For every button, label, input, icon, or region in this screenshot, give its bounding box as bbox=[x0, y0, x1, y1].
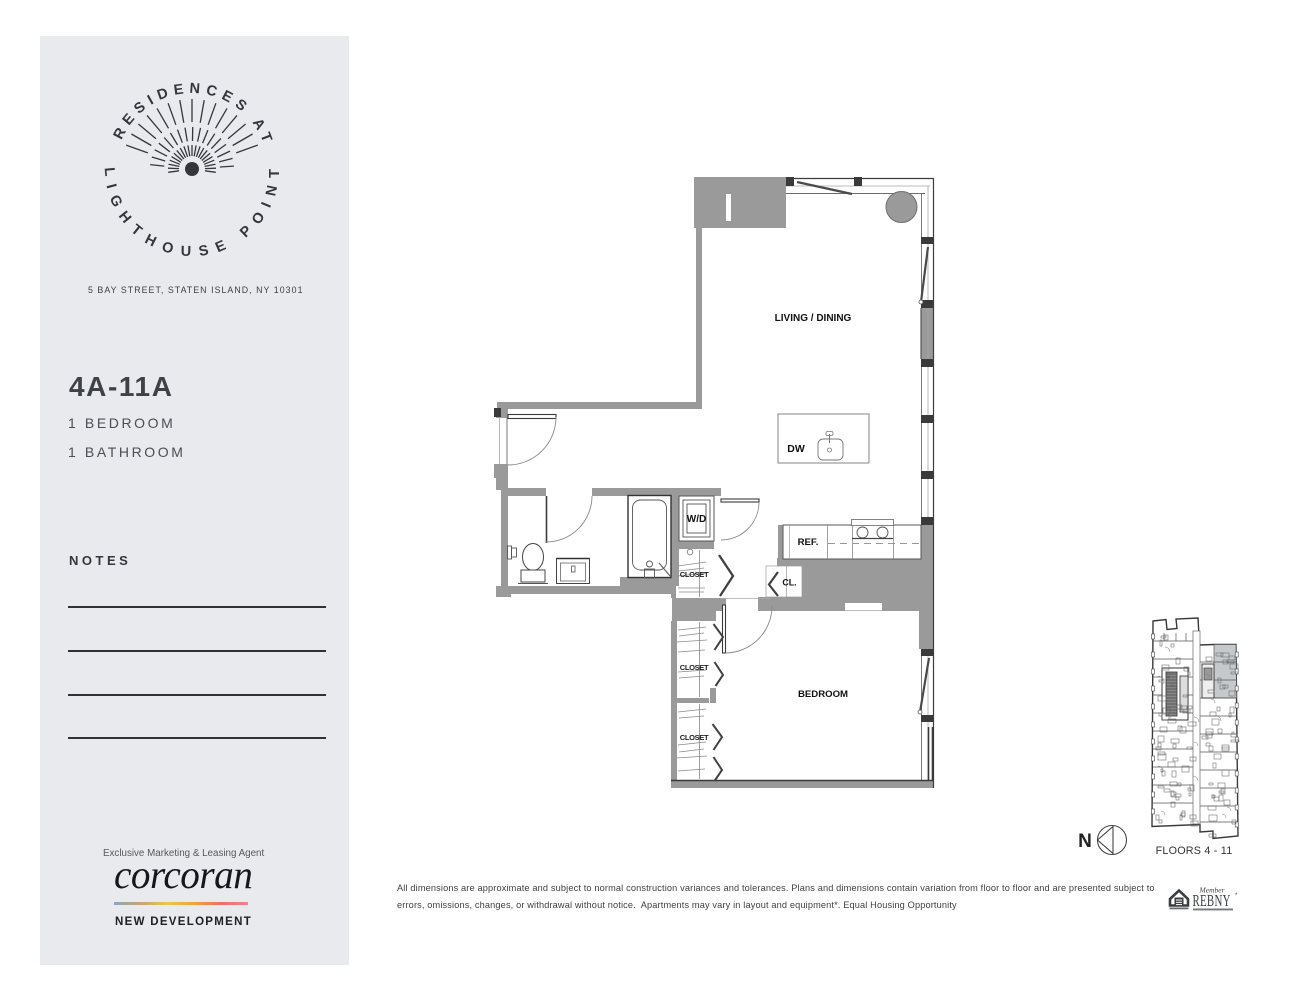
svg-text:FLOORS 4 - 11: FLOORS 4 - 11 bbox=[1156, 845, 1233, 857]
svg-text:LIVING / DINING: LIVING / DINING bbox=[775, 313, 852, 324]
svg-text:BEDROOM: BEDROOM bbox=[798, 689, 848, 700]
svg-text:CLOSET: CLOSET bbox=[680, 663, 709, 672]
svg-text:CL.: CL. bbox=[782, 578, 796, 588]
svg-text:CLOSET: CLOSET bbox=[680, 570, 709, 579]
svg-text:W/D: W/D bbox=[687, 514, 706, 525]
svg-text:CLOSET: CLOSET bbox=[680, 733, 709, 742]
svg-text:DW: DW bbox=[787, 443, 805, 455]
svg-text:REF.: REF. bbox=[798, 537, 819, 548]
svg-text:N: N bbox=[1078, 831, 1092, 852]
svg-text:*: * bbox=[1235, 893, 1238, 899]
svg-text:REBNY: REBNY bbox=[1193, 893, 1231, 911]
